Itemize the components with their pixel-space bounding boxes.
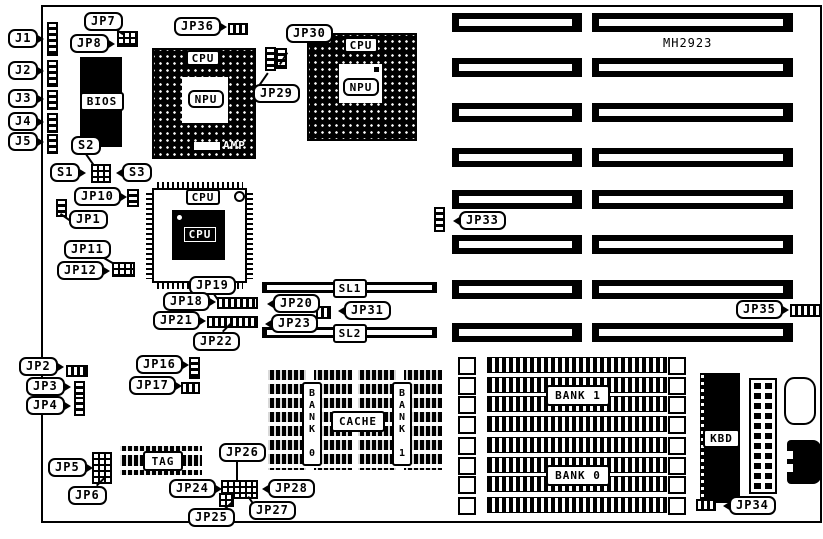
- simm-latch: [668, 416, 686, 434]
- expansion-slot: [452, 190, 582, 209]
- callout-jp18: JP18: [163, 292, 210, 311]
- simm-socket: [487, 416, 667, 432]
- jp2-header: [66, 365, 88, 377]
- simm-latch: [458, 396, 476, 414]
- callout-jp34: JP34: [729, 496, 776, 515]
- crystal-outline: [784, 377, 816, 425]
- keyboard-din-connector: [787, 440, 821, 484]
- expansion-slot: [452, 148, 582, 167]
- jp21-header: [207, 316, 258, 328]
- simm-latch: [458, 497, 476, 515]
- callout-jp16: JP16: [136, 355, 183, 374]
- power-connector: [749, 378, 777, 494]
- simm-latch: [458, 377, 476, 395]
- callout-j3: J3: [8, 89, 38, 108]
- callout-j5: J5: [8, 132, 38, 151]
- cache-bank1-label: BANK 1: [392, 382, 412, 466]
- s1-s2-s3-switch: [91, 164, 111, 183]
- callout-jp21: JP21: [153, 311, 200, 330]
- callout-jp36: JP36: [174, 17, 221, 36]
- callout-jp10: JP10: [74, 187, 121, 206]
- simm-latch: [458, 437, 476, 455]
- callout-jp1: JP1: [69, 210, 108, 229]
- callout-jp29: JP29: [253, 84, 300, 103]
- callout-jp8: JP8: [70, 34, 109, 53]
- simm-bank1-label: BANK 1: [546, 385, 610, 406]
- jp33-header: [434, 207, 445, 232]
- callout-jp3: JP3: [26, 377, 65, 396]
- simm-latch: [668, 476, 686, 494]
- die-dot: [177, 215, 182, 220]
- simm-latch: [668, 497, 686, 515]
- callout-jp20: JP20: [273, 294, 320, 313]
- jp11-jp12-header: [112, 262, 135, 277]
- callout-jp7: JP7: [84, 12, 123, 31]
- bios-label: BIOS: [80, 92, 124, 111]
- callout-jp22: JP22: [193, 332, 240, 351]
- amp-slot-mark: [194, 142, 220, 150]
- qfp-pin1-mark: [234, 191, 245, 202]
- simm-latch: [668, 437, 686, 455]
- callout-jp30: JP30: [286, 24, 333, 43]
- board-part-number: MH2923: [663, 36, 712, 50]
- callout-jp28: JP28: [268, 479, 315, 498]
- tag-label: TAG: [143, 451, 183, 471]
- expansion-slot: [452, 103, 582, 122]
- simm-socket: [487, 497, 667, 513]
- expansion-slot: [592, 323, 793, 342]
- callout-jp4: JP4: [26, 396, 65, 415]
- cpu-1-label: CPU: [186, 50, 220, 66]
- simm-latch: [668, 377, 686, 395]
- expansion-slot: [452, 58, 582, 77]
- callout-j1: J1: [8, 29, 38, 48]
- expansion-slot: [452, 235, 582, 254]
- expansion-slot: [452, 13, 582, 32]
- simm-latch: [668, 357, 686, 375]
- simm-latch: [458, 416, 476, 434]
- expansion-slot: [592, 103, 793, 122]
- simm-latch: [668, 396, 686, 414]
- jp35-header: [790, 304, 821, 317]
- callout-j4: J4: [8, 112, 38, 131]
- expansion-slot: [592, 58, 793, 77]
- npu-2-label: NPU: [343, 78, 379, 96]
- simm-socket: [487, 437, 667, 453]
- expansion-slot: [592, 148, 793, 167]
- expansion-slot: [452, 280, 582, 299]
- simm-latch: [458, 476, 476, 494]
- callout-jp2: JP2: [19, 357, 58, 376]
- qfp-cpu-top-label: CPU: [186, 189, 220, 205]
- sl1-label: SL1: [333, 279, 367, 298]
- qfp-cpu-die-label: CPU: [184, 227, 216, 242]
- callout-jp23: JP23: [271, 314, 318, 333]
- amp-label: AMP: [223, 139, 246, 152]
- callout-jp33: JP33: [459, 211, 506, 230]
- callout-jp27: JP27: [249, 501, 296, 520]
- callout-j2: J2: [8, 61, 38, 80]
- expansion-slot: [592, 13, 793, 32]
- npu-1-label: NPU: [188, 90, 224, 108]
- expansion-slot: [592, 280, 793, 299]
- callout-s1: S1: [50, 163, 80, 182]
- jp18-header: [217, 297, 258, 309]
- simm-latch: [458, 457, 476, 475]
- callout-jp12: JP12: [57, 261, 104, 280]
- callout-jp26: JP26: [219, 443, 266, 462]
- callout-s2: S2: [71, 136, 101, 155]
- sl2-label: SL2: [333, 324, 367, 343]
- motherboard-diagram: MH2923 CPU NPU AMP CPU NPU BIOS CPU CPU …: [0, 0, 823, 539]
- simm-latch: [668, 457, 686, 475]
- simm-bank0-label: BANK 0: [546, 465, 610, 486]
- callout-jp24: JP24: [169, 479, 216, 498]
- callout-s3: S3: [122, 163, 152, 182]
- expansion-slot: [592, 190, 793, 209]
- expansion-slot: [452, 323, 582, 342]
- simm-socket: [487, 357, 667, 373]
- callout-jp25: JP25: [188, 508, 235, 527]
- kbd-label: KBD: [703, 429, 740, 448]
- pin1-dot: [374, 67, 379, 72]
- expansion-slot: [592, 235, 793, 254]
- callout-jp6: JP6: [68, 486, 107, 505]
- callout-jp35: JP35: [736, 300, 783, 319]
- cache-label: CACHE: [331, 411, 385, 432]
- callout-jp11: JP11: [64, 240, 111, 259]
- callout-jp17: JP17: [129, 376, 176, 395]
- cache-bank0-label: BANK 0: [302, 382, 322, 466]
- jp34-header: [696, 499, 716, 511]
- cpu-2-label: CPU: [344, 37, 378, 53]
- jp29-header: [265, 47, 276, 71]
- callout-jp31: JP31: [344, 301, 391, 320]
- jp26-line: [236, 460, 238, 480]
- simm-latch: [458, 357, 476, 375]
- qfp-pins-right: [247, 193, 253, 279]
- callout-jp5: JP5: [48, 458, 87, 477]
